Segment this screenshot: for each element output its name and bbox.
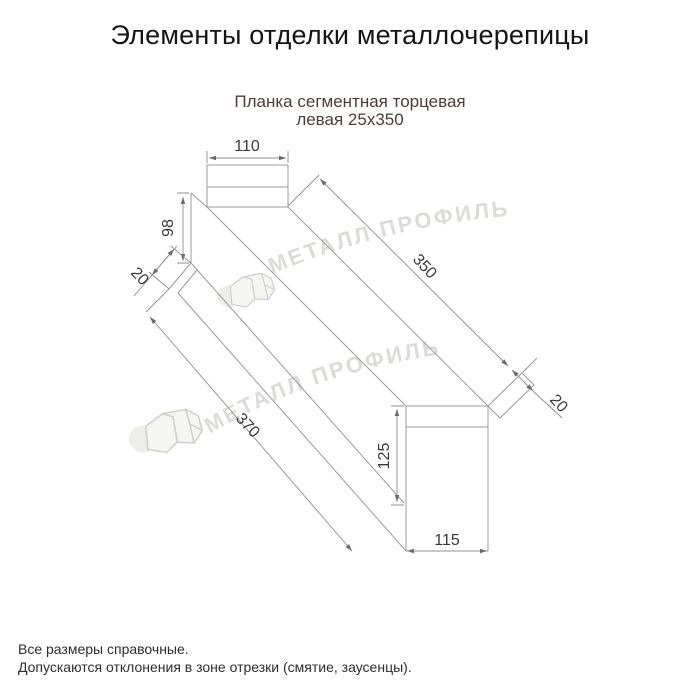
- dimension-labels: 110 98 20 350 20 370 125 115: [0, 0, 700, 700]
- dim-label-98: 98: [160, 219, 178, 237]
- dim-label-370: 370: [231, 410, 262, 442]
- footnote-line1: Все размеры справочные.: [18, 640, 412, 658]
- dim-label-20-left: 20: [126, 264, 151, 289]
- dim-label-115: 115: [434, 532, 460, 550]
- catalog-drawing-page: Элементы отделки металлочерепицы Планка …: [0, 0, 700, 700]
- dim-label-110: 110: [234, 138, 260, 156]
- footnotes: Все размеры справочные. Допускаются откл…: [18, 640, 412, 676]
- dim-label-20-right: 20: [545, 391, 570, 416]
- dim-label-350: 350: [408, 251, 439, 283]
- dim-label-125: 125: [376, 443, 394, 470]
- footnote-line2: Допускаются отклонения в зоне отрезки (с…: [18, 658, 412, 676]
